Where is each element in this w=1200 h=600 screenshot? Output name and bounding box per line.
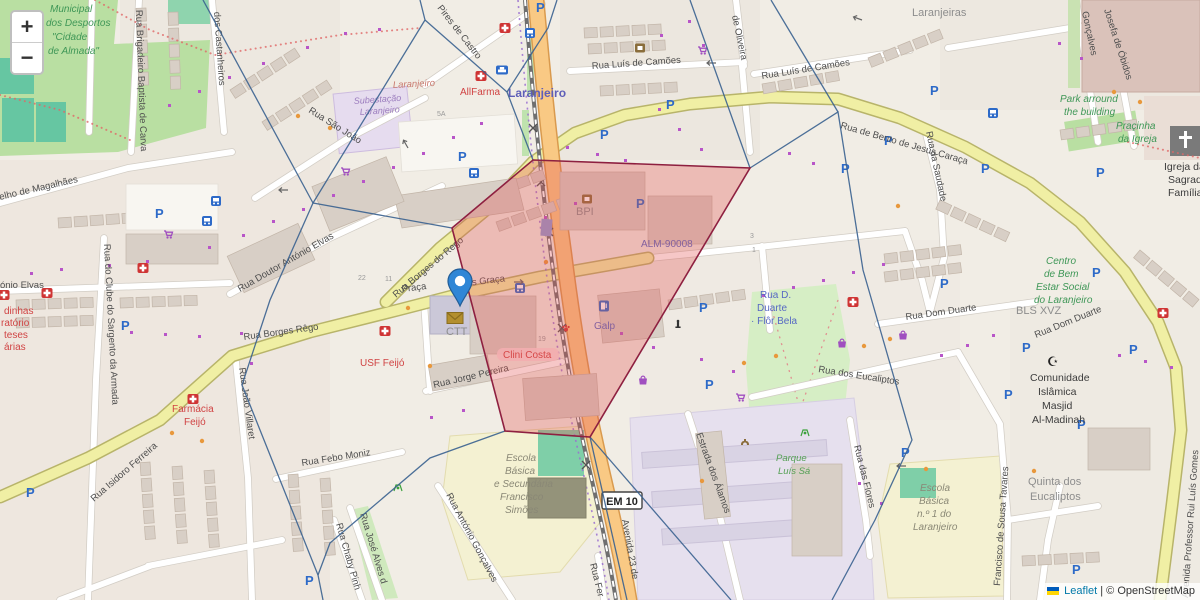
bus-stop-icon: [525, 28, 535, 38]
housenumber: 3: [750, 233, 754, 240]
pharmacy-icon: [380, 326, 391, 336]
label: de Bem: [1044, 269, 1078, 280]
place-label: Laranjeiro: [393, 78, 436, 91]
zoom-control: + −: [10, 10, 44, 75]
post-office-envelope-icon: [447, 313, 463, 324]
label: de Almada": [48, 46, 99, 57]
poi-label: CTT: [446, 326, 468, 338]
parking-icon: P: [1072, 562, 1081, 577]
school-label: Escola: [506, 453, 536, 464]
zoom-out-button[interactable]: −: [12, 43, 42, 73]
parking-icon: P: [1096, 165, 1105, 180]
parking-icon: P: [1022, 340, 1031, 355]
attribution-separator: |: [1100, 585, 1103, 597]
church-icon: [1170, 126, 1200, 156]
map-viewport[interactable]: ☪ P P P P P P P P P P P P P P P P P P P …: [0, 0, 1200, 600]
park-label: Parque: [776, 453, 807, 464]
poi-label: Masjid: [1042, 400, 1073, 412]
poi-label: Comunidade: [1030, 372, 1090, 384]
osm-attribution: © OpenStreetMap: [1106, 585, 1195, 597]
place-label: Laranjeiras: [912, 7, 967, 19]
place-label: Eucaliptos: [1030, 491, 1081, 503]
bus-stop-icon: [211, 196, 221, 206]
attribution-bar: Leaflet | © OpenStreetMap: [1042, 583, 1200, 600]
map-marker[interactable]: [446, 268, 474, 308]
park-label: Luís Sá: [778, 466, 810, 477]
parking-icon: P: [305, 573, 314, 588]
label: Municipal: [50, 4, 93, 15]
street-label: Praça: [401, 281, 428, 295]
poi-label: Farmácia: [172, 404, 214, 415]
housenumber: 11: [385, 276, 392, 283]
poi-label: Al-Madinah: [1032, 414, 1085, 426]
base-map: ☪ P P P P P P P P P P P P P P P P P P P …: [0, 0, 1200, 600]
pharmacy-icon: [848, 297, 859, 307]
label: BLS XVZ: [1016, 305, 1062, 317]
poi-label: Família: [1168, 187, 1200, 199]
poi-label: Feijó: [184, 417, 206, 428]
school-label: n.º 1 do: [917, 509, 952, 520]
bus-stop-label: Duarte: [757, 303, 787, 314]
housenumber: 1: [752, 247, 756, 254]
pharmacy-icon: [188, 394, 199, 404]
parking-icon: P: [705, 377, 714, 392]
label: Estar Social: [1036, 282, 1090, 293]
school-label: Laranjeiro: [913, 522, 958, 533]
pharmacy-icon: [500, 23, 511, 33]
svg-text:EM 10: EM 10: [606, 496, 638, 508]
street-label: Pires de Castro: [435, 3, 484, 61]
school-label: Simões: [505, 505, 538, 516]
housenumber: 5A: [437, 111, 446, 118]
parking-icon: P: [699, 300, 708, 315]
parking-ticket-icon: [988, 108, 998, 118]
place-label: Quinta dos: [1028, 476, 1082, 488]
bank-icon: [635, 44, 645, 53]
taxi-icon: [496, 66, 508, 75]
leaflet-link[interactable]: Leaflet: [1064, 585, 1097, 597]
parking-icon: P: [981, 161, 990, 176]
label: da Igreja: [1118, 134, 1157, 145]
pharmacy-icon: [138, 263, 149, 273]
parking-icon: P: [940, 276, 949, 291]
parking-icon: P: [155, 206, 164, 221]
bus-stop-label: · Flôr Bela: [751, 316, 798, 327]
parking-icon: P: [536, 0, 545, 15]
poi-label: Islâmica: [1038, 386, 1077, 398]
station-label: Laranjeiro: [508, 86, 566, 100]
bus-stop-icon: [202, 216, 212, 226]
parking-icon: P: [666, 97, 675, 112]
parking-icon: P: [1004, 387, 1013, 402]
poi-label: Igreja da: [1164, 161, 1200, 173]
label: Praçinha: [1116, 121, 1156, 132]
poi-label: Sagrada: [1168, 174, 1200, 186]
bus-stop-icon: [469, 168, 479, 178]
road-shield-em10: EM 10: [602, 492, 642, 509]
school-label: Básica: [919, 496, 949, 507]
housenumber: 22: [358, 275, 366, 282]
parking-icon: P: [1129, 342, 1138, 357]
school-label: Escola: [920, 483, 950, 494]
label: "Cidade: [52, 32, 88, 43]
pharmacy-icon: [1158, 308, 1169, 318]
label: Park arround: [1060, 94, 1118, 105]
school-label: Francisco: [500, 492, 544, 503]
parking-icon: P: [600, 127, 609, 142]
label: Centro: [1046, 256, 1076, 267]
ukraine-flag-icon: [1047, 587, 1059, 595]
bus-stop-label: Rua D.: [760, 290, 791, 301]
mosque-icon: ☪: [1047, 354, 1059, 369]
poi-label: dinhas: [4, 306, 33, 317]
parking-icon: P: [458, 149, 467, 164]
poi-label: teses: [4, 330, 28, 341]
poi-label: ratório: [1, 318, 30, 329]
poi-label: árias: [4, 342, 26, 353]
zoom-in-button[interactable]: +: [12, 12, 42, 43]
poi-label: AllFarma: [460, 87, 500, 98]
parking-icon: P: [26, 485, 35, 500]
label: dos Desportos: [46, 18, 110, 29]
school-label: Básica: [505, 466, 535, 477]
pharmacy-icon: [0, 290, 10, 300]
poi-label: USF Feijó: [360, 358, 405, 369]
parking-icon: P: [121, 318, 130, 333]
parking-icon: P: [1092, 265, 1101, 280]
label: the building: [1064, 107, 1116, 118]
parking-icon: P: [930, 83, 939, 98]
school-label: e Secundária: [494, 479, 553, 490]
street-label: ónio Elvas: [0, 280, 44, 291]
